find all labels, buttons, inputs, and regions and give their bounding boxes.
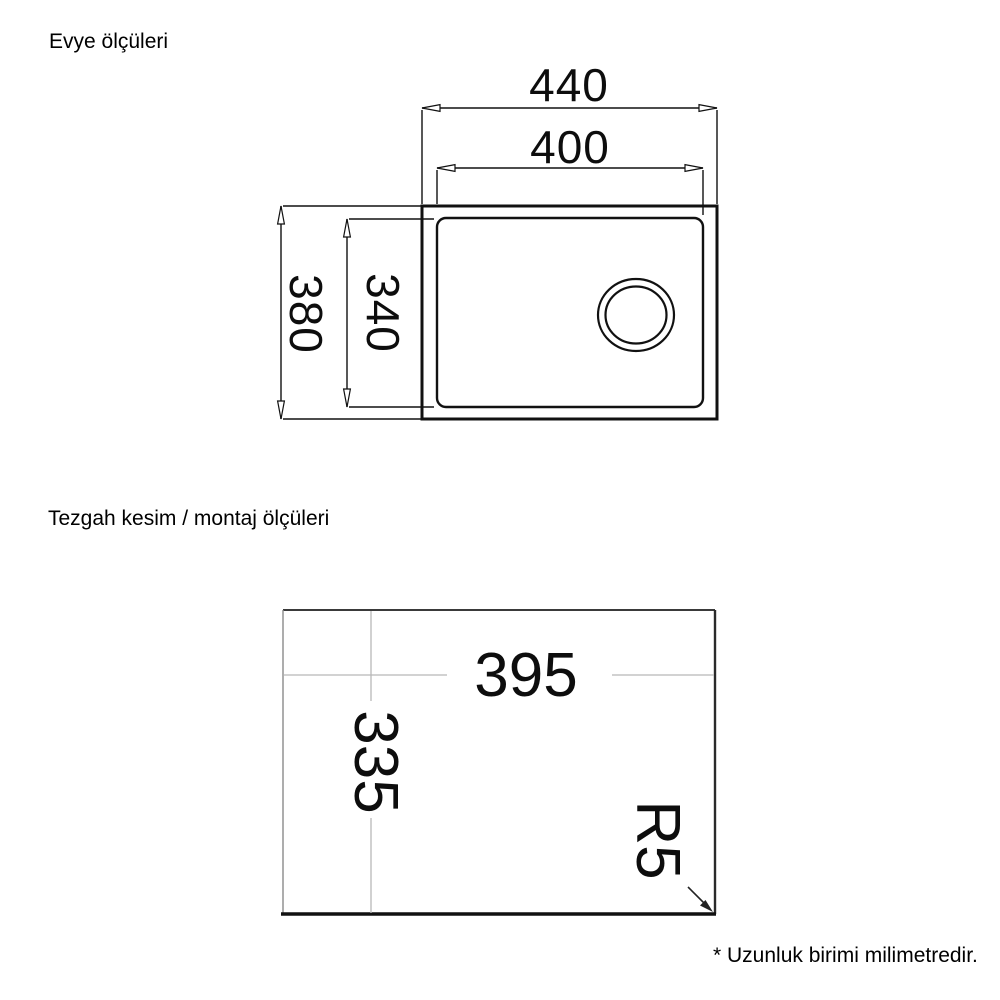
sink-inner-bowl-outline: [437, 218, 703, 407]
arrowhead-up-icon: [278, 206, 285, 224]
dim-label-inner-height: 340: [360, 273, 406, 353]
drawing-linework: [0, 0, 1000, 1000]
technical-drawing-page: Evye ölçüleri 440 400 380 340 Tezgah kes…: [0, 0, 1000, 1000]
dim-label-cut-width: 395: [474, 645, 577, 707]
arrowhead-left-icon: [437, 165, 455, 172]
dim-label-inner-width: 400: [530, 124, 610, 170]
cutout-section-title: Tezgah kesim / montaj ölçüleri: [48, 508, 329, 530]
drain-inner-circle: [606, 287, 667, 344]
sink-outer-outline: [422, 206, 717, 419]
arrowhead-down-icon: [344, 389, 351, 407]
dim-label-outer-height: 380: [283, 274, 329, 354]
arrowhead-left-icon: [422, 105, 440, 112]
radius-leader: [688, 887, 713, 912]
dim-label-outer-width: 440: [529, 62, 609, 108]
arrowhead-right-icon: [685, 165, 703, 172]
sink-section-title: Evye ölçüleri: [49, 31, 168, 53]
drain-outer-circle: [598, 279, 674, 351]
dim-label-cut-height: 335: [344, 710, 406, 813]
dim-label-corner-radius: R5: [626, 800, 688, 879]
arrowhead-down-icon: [278, 401, 285, 419]
sink-drawing: [278, 105, 717, 419]
arrowhead-right-icon: [699, 105, 717, 112]
arrowhead-up-icon: [344, 219, 351, 237]
units-footnote: * Uzunluk birimi milimetredir.: [713, 944, 978, 968]
